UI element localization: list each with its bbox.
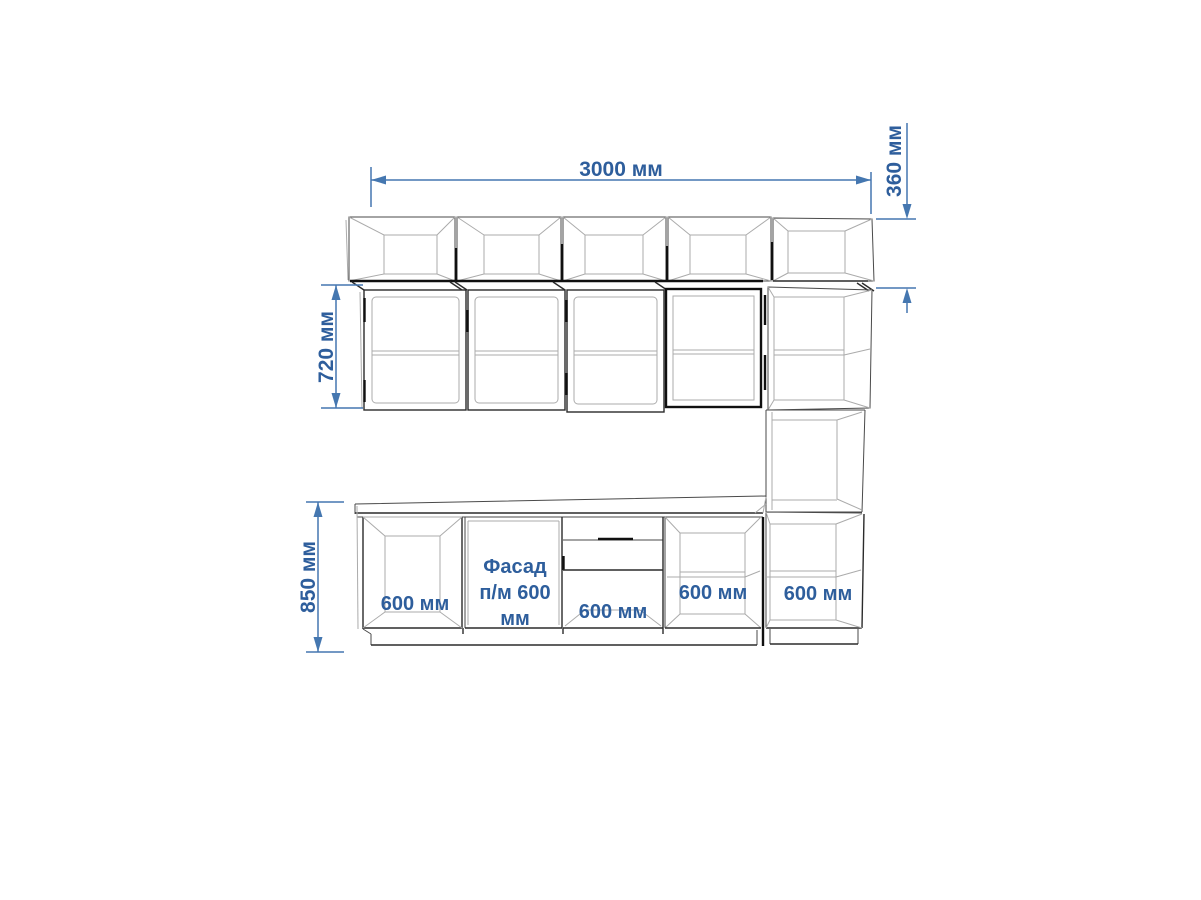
sink-facade-label-line3: мм: [500, 608, 530, 630]
wall-cabinets-second-row: [360, 289, 761, 412]
base-cabinet-5-label: 600 мм: [784, 583, 853, 605]
kitchen-elevation-drawing: 3000 мм 360 мм 720 мм 850 мм 600 мм Фаса…: [0, 0, 1201, 900]
sink-facade-label-line2: п/м 600: [479, 582, 550, 604]
dimension-base-height: 850 мм: [297, 502, 344, 652]
dimension-total-width-label: 3000 мм: [579, 158, 663, 181]
base-cabinets: [357, 506, 763, 646]
dimension-wall-cabinet-height: 720 мм: [315, 285, 363, 408]
dimension-wall-cabinet-height-label: 720 мм: [315, 311, 338, 383]
base-cabinet-3-label: 600 мм: [579, 601, 648, 623]
technical-drawing-canvas: 3000 мм 360 мм 720 мм 850 мм 600 мм Фаса…: [0, 0, 1201, 900]
dimension-upper-row-height: 360 мм: [876, 123, 916, 313]
dimension-upper-row-height-label: 360 мм: [883, 125, 906, 197]
countertop: [355, 496, 766, 517]
sink-facade-label-line1: Фасад: [483, 556, 547, 578]
base-cabinet-4-label: 600 мм: [679, 582, 748, 604]
base-cabinet-1-label: 600 мм: [381, 593, 450, 615]
wall-cabinets-top-row: [346, 217, 874, 291]
dimension-total-width: 3000 мм: [371, 158, 871, 214]
dimension-base-height-label: 850 мм: [297, 541, 320, 613]
cabinet-width-labels: 600 мм Фасад п/м 600 мм 600 мм 600 мм 60…: [381, 556, 853, 630]
